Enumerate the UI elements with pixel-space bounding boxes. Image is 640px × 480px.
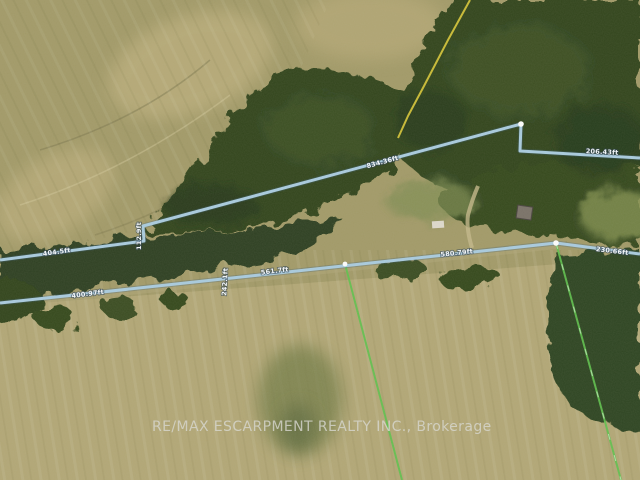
vertex-dot [518, 121, 524, 127]
vertex-dot [343, 262, 348, 267]
house-roof [516, 205, 533, 220]
measurement-label-upper-jog: 112.9ft [135, 222, 143, 250]
vertex-dot [553, 240, 559, 246]
satellite-map: 404.5ft 112.9ft 834.36ft 206.43ft 400.97… [0, 0, 640, 480]
map-canvas: 404.5ft 112.9ft 834.36ft 206.43ft 400.97… [0, 0, 640, 480]
measurement-label-lower-cross: 242.1ft [220, 268, 229, 296]
white-shed [432, 221, 444, 229]
brokerage-watermark: RE/MAX ESCARPMENT REALTY INC., Brokerage [152, 419, 492, 435]
measurement-label-upper-right: 206.43ft [586, 147, 619, 157]
